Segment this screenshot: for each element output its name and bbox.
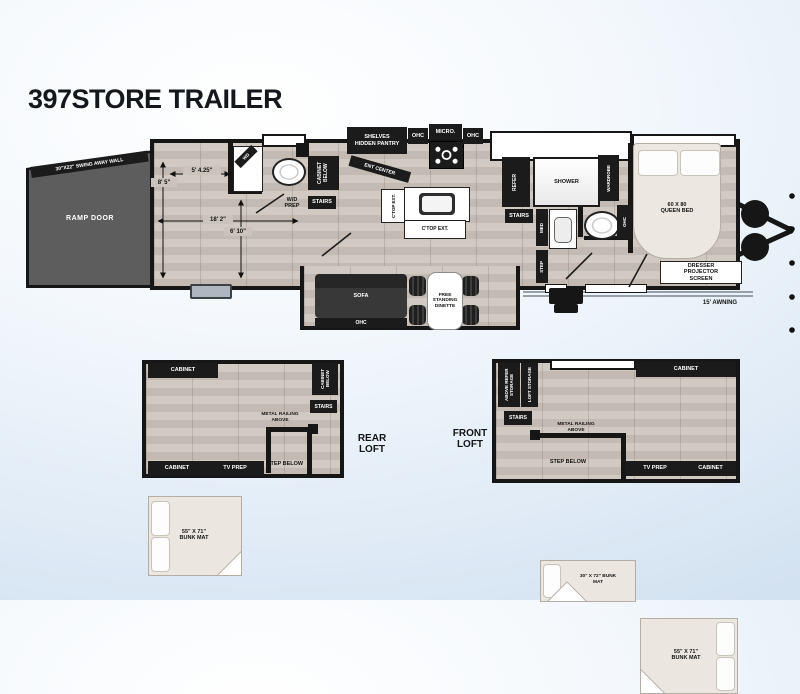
awning-label: 15' AWNING <box>688 299 752 308</box>
wall <box>578 207 583 237</box>
front-step-below-label: STEP BELOW <box>548 454 588 470</box>
above-refer-storage-label: ABOVE REFER STORAGE <box>504 363 514 407</box>
entry-steps-lower <box>554 304 578 313</box>
sink <box>419 193 455 215</box>
page-title: 397STORE TRAILER <box>28 84 448 118</box>
rear-cabinet: CABINET <box>148 363 218 378</box>
rear-bunk-mat: 55" X 71" BUNK MAT <box>148 496 242 576</box>
stairs-rear-loft: STAIRS <box>308 196 336 209</box>
bullet-dots <box>789 193 795 333</box>
rear-cabinet-below: CABINET BELOW <box>312 363 338 395</box>
garage-step <box>190 284 232 299</box>
pillow <box>680 150 720 176</box>
ohc-label: OHC <box>622 217 627 227</box>
dinette-chair <box>409 276 426 296</box>
wardrobe-label: WARDROBE <box>606 165 611 192</box>
dinette-chair <box>409 305 426 325</box>
front-railing <box>538 433 626 438</box>
front-bunk-55: 55" X 71" BUNK MAT <box>640 618 738 694</box>
rear-step-below-label: STEP BELOW <box>266 456 304 472</box>
front-bunk-30: 30" X 72" BUNK MAT <box>540 560 636 602</box>
entry-steps <box>549 288 583 304</box>
dinette-chair <box>462 305 479 325</box>
dim-garage-mid-height: 6' 10" <box>224 227 252 236</box>
rear-tv-prep: TV PREP <box>206 461 264 476</box>
dresser-label: DRESSER PROJECTOR SCREEN <box>672 263 730 282</box>
med-label: MED <box>539 223 544 233</box>
ohc-cabinet: OHC <box>463 128 483 144</box>
pillow <box>151 537 170 572</box>
front-tv-prep: TV PREP <box>625 461 685 476</box>
toilet <box>272 158 306 186</box>
countertop-extension-side: C'TOP EXT. <box>381 189 406 223</box>
hidden-pantry-cabinet: SHELVES HIDDEN PANTRY <box>347 127 407 154</box>
hitch-a-frame <box>738 200 794 261</box>
rear-railing-label: METAL RAILING ABOVE <box>258 410 302 425</box>
sofa-ohc: OHC <box>315 318 407 328</box>
kitchen-island <box>404 187 470 222</box>
dim-garage-length: 18' 2" <box>203 215 233 224</box>
dinette-chair <box>462 276 479 296</box>
dinette-table: FREE STANDING DINETTE <box>427 272 463 330</box>
microwave-label: MICRO. <box>429 124 462 140</box>
loft-storage: LOFT STORAGE <box>521 363 538 407</box>
pillow <box>638 150 678 176</box>
wall <box>296 143 309 157</box>
propane-tank <box>741 200 769 228</box>
cabinet-below-label: CABINET BELOW <box>318 156 330 190</box>
step-label: STEP <box>539 261 544 273</box>
entry-step: STEP <box>536 250 548 283</box>
rear-cabinet-2: CABINET <box>148 461 206 476</box>
sofa-label: SOFA <box>354 293 369 299</box>
front-loft-title: FRONT LOFT <box>450 426 490 452</box>
front-bunk-55-label: 55" X 71" BUNK MAT <box>669 645 703 665</box>
toilet <box>584 211 620 240</box>
rear-loft-title: REAR LOFT <box>350 431 394 457</box>
dresser-projector-screen: DRESSER PROJECTOR SCREEN <box>660 261 742 284</box>
pillow <box>716 657 735 691</box>
ohc-cabinet: OHC <box>408 128 428 144</box>
dim-garage-width: 5' 4.25" <box>183 166 221 175</box>
vanity-sink <box>554 217 572 243</box>
blanket-fold <box>217 551 242 576</box>
dinette-label: FREE STANDING DINETTE <box>432 293 458 310</box>
wall <box>307 432 312 474</box>
sofa: SOFA <box>315 274 407 318</box>
hidden-pantry-label: HIDDEN PANTRY <box>355 141 400 148</box>
queen-bed: 60 X 80 QUEEN BED <box>633 143 721 259</box>
loft-storage-label: LOFT STORAGE <box>527 367 532 402</box>
ramp-door-label: RAMP DOOR <box>40 212 140 226</box>
above-refer-storage: ABOVE REFER STORAGE <box>498 363 520 407</box>
hitch-coupler <box>786 226 794 234</box>
front-cabinet: CABINET <box>636 362 736 377</box>
queen-bed-label: 60 X 80 QUEEN BED <box>660 196 694 220</box>
medicine-cabinet: MED <box>536 209 548 246</box>
shelves-label: SHELVES <box>355 134 400 141</box>
window <box>550 359 636 370</box>
pillow <box>716 622 735 656</box>
floorplan-page: 397STORE TRAILER 30"X22" SWING AWAY WALL… <box>0 0 800 600</box>
front-bunk-30-label: 30" X 72" BUNK MAT <box>575 571 621 589</box>
range-stove <box>429 141 464 169</box>
dim-garage-height: 8' 5" <box>151 178 177 187</box>
wd-prep-label: W/D PREP <box>280 196 304 210</box>
pillow <box>151 501 170 536</box>
rear-stairs: STAIRS <box>310 400 337 413</box>
front-cabinet-2: CABINET <box>685 461 736 476</box>
rear-bunk-label: 55" X 71" BUNK MAT <box>177 525 211 545</box>
ohc-cabinet: OHC <box>617 205 632 239</box>
rear-cabinet-below-label: CABINET BELOW <box>320 363 330 395</box>
wardrobe: WARDROBE <box>598 155 619 201</box>
refer-label: REFER <box>513 174 519 191</box>
sink-basin <box>422 196 452 212</box>
shower: SHOWER <box>533 157 600 207</box>
refrigerator: REFER <box>502 157 530 207</box>
countertop-extension: C'TOP EXT. <box>404 220 466 239</box>
blanket-fold <box>640 669 665 694</box>
ctop-ext-label: C'TOP EXT. <box>391 194 396 218</box>
front-stairs: STAIRS <box>504 411 532 425</box>
bath-vanity <box>549 209 577 249</box>
shower-label: SHOWER <box>554 179 579 185</box>
cabinet-below-closet: CABINET BELOW <box>308 156 339 190</box>
propane-tank <box>741 233 769 261</box>
window <box>585 284 647 293</box>
stairs-front-loft: STAIRS <box>505 209 533 223</box>
